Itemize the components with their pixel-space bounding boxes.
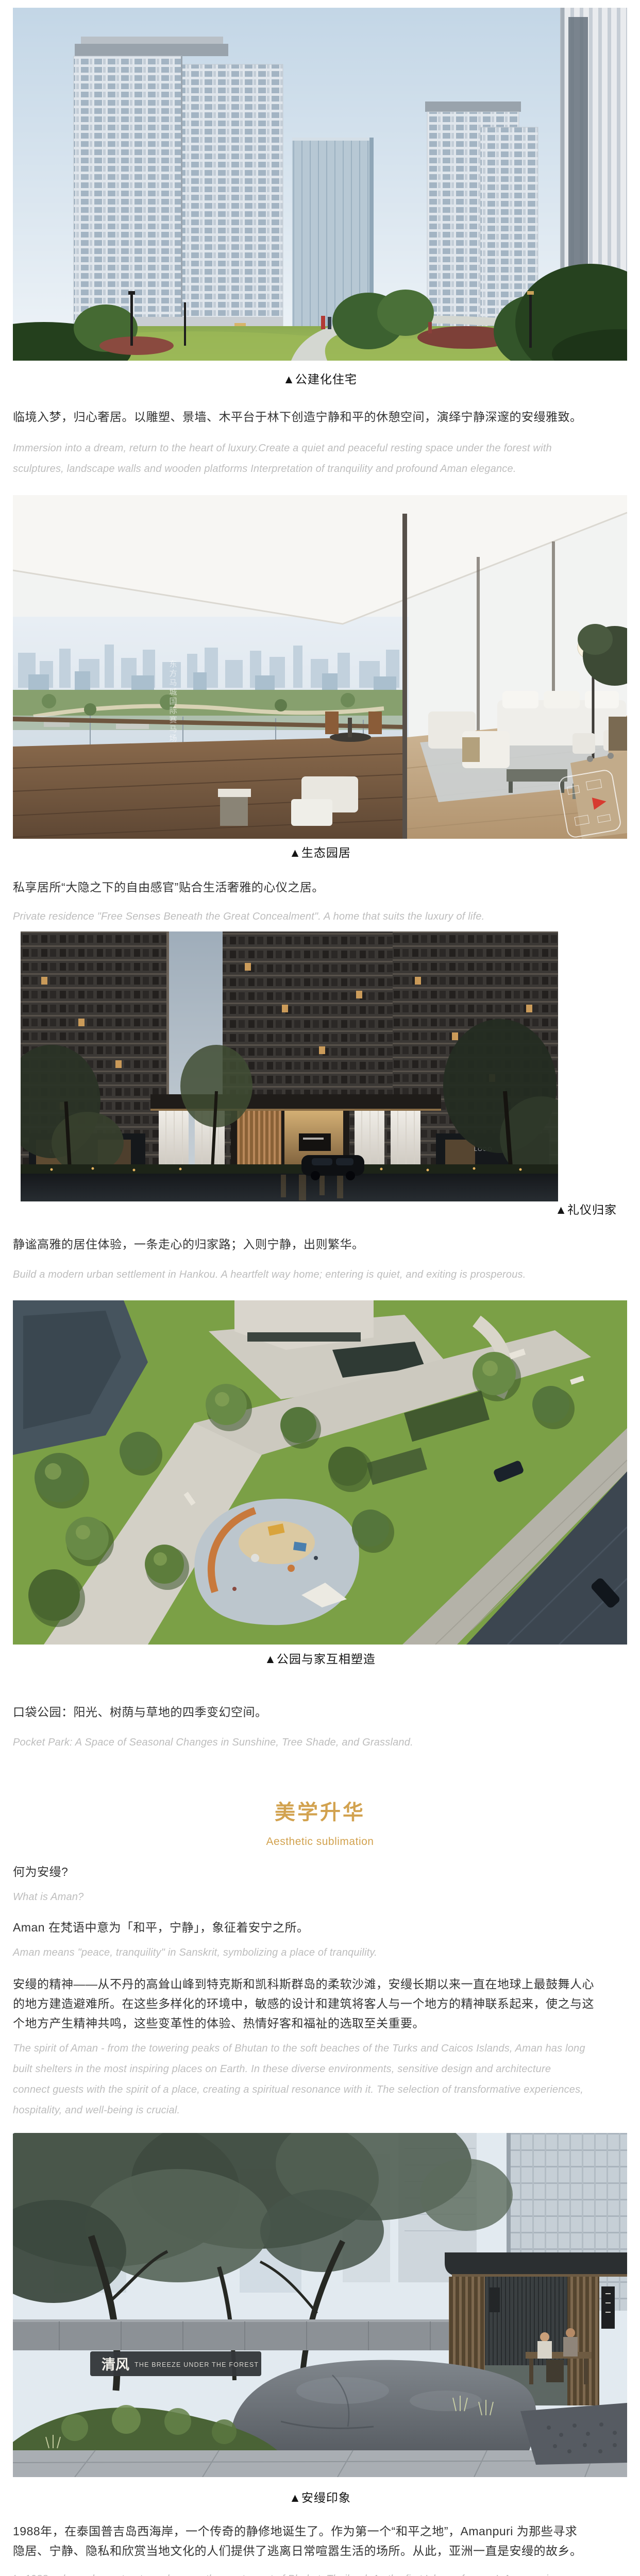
paragraph-zh-dream: 临境入梦，归心奢居。以雕塑、景墙、木平台于林下创造宁静和平的休憩空间，演绎宁静深… <box>13 407 627 427</box>
image-caption-residences: ▲公建化住宅 <box>13 372 627 386</box>
paragraph-zh-pocket-park: 口袋公园：阳光、树荫与草地的四季变幻空间。 <box>13 1702 627 1722</box>
paragraph-en-dream: Immersion into a dream, return to the he… <box>13 438 627 479</box>
playground <box>194 1499 359 1625</box>
tower-left-pair <box>74 37 283 338</box>
paragraph-en-private: Private residence "Free Senses Beneath t… <box>13 906 627 927</box>
park-aerial-render-image <box>13 1300 627 1645</box>
photo-pocket-park-aerial[interactable] <box>13 1300 627 1645</box>
paragraph-en-arrival: Build a modern urban settlement in Hanko… <box>13 1264 627 1285</box>
shrub-strip <box>21 1164 558 1175</box>
paragraph-en-pocket-park: Pocket Park: A Space of Seasonal Changes… <box>13 1732 627 1753</box>
breeze-sign-en-text: THE BREEZE UNDER THE FOREST <box>134 2361 259 2368</box>
stone-wall <box>13 2319 487 2350</box>
photo-aman-impression[interactable]: 清风 THE BREEZE UNDER THE FOREST <box>13 2133 627 2477</box>
paragraph-zh-private: 私享居所“大隐之下的自由感官”贴合生活奢雅的心仪之居。 <box>13 877 627 897</box>
paragraph-zh-aman-spirit: 安缦的精神——从不丹的高耸山峰到特克斯和凯科斯群岛的柔软沙滩，安缦长期以来一直在… <box>13 1974 627 2033</box>
balcony-render-image: 东方马城国际赛马场 <box>13 495 627 839</box>
section-title-aesthetic: 美学升华 <box>13 1800 627 1825</box>
photo-ceremonial-arrival[interactable]: LOGO LOGO <box>21 931 558 1201</box>
paragraph-en-what-is-aman: What is Aman? <box>13 1887 627 1907</box>
photo-eco-garden-residence[interactable]: 东方马城国际赛马场 <box>13 495 627 839</box>
image-caption-eco: ▲生态园居 <box>13 845 627 860</box>
article-page: ▲公建化住宅 临境入梦，归心奢居。以雕塑、景墙、木平台于林下创造宁静和平的休憩空… <box>0 8 640 2576</box>
paragraph-en-1988: In 1988, a legendary retreat was born on… <box>13 2569 627 2576</box>
watermark-text: 东方马城国际赛马场 <box>169 660 177 743</box>
wet-pavement <box>21 1174 558 1201</box>
image-caption-park: ▲公园与家互相塑造 <box>13 1652 627 1666</box>
paragraph-en-aman-spirit: The spirit of Aman - from the towering p… <box>13 2038 627 2121</box>
section-subtitle-aesthetic: Aesthetic sublimation <box>13 1835 627 1849</box>
paragraph-zh-aman-meaning: Aman 在梵语中意为「和平，宁静」，象征着安宁之所。 <box>13 1918 627 1937</box>
image-caption-aman: ▲安缦印象 <box>13 2490 627 2505</box>
residences-render-image <box>13 8 627 361</box>
breeze-sign: 清风 THE BREEZE UNDER THE FOREST <box>90 2351 261 2376</box>
garden-render-image: 清风 THE BREEZE UNDER THE FOREST <box>13 2133 627 2477</box>
entrance-render-image: LOGO LOGO <box>21 931 558 1201</box>
image-caption-arrival: ▲礼仪归家 <box>555 1202 617 1217</box>
paragraph-zh-what-is-aman: 何为安缦? <box>13 1862 627 1882</box>
paragraph-en-aman-meaning: Aman means "peace, tranquility" in Sansk… <box>13 1942 627 1963</box>
photo-public-style-residences[interactable] <box>13 8 627 361</box>
paragraph-zh-arrival: 静谧高雅的居住体验，一条走心的归家路；入则宁静，出则繁华。 <box>13 1234 627 1254</box>
breeze-sign-zh-text: 清风 <box>102 2357 129 2372</box>
paragraph-zh-1988: 1988年，在泰国普吉岛西海岸，一个传奇的静修地诞生了。作为第一个“和平之地”，… <box>13 2521 627 2561</box>
